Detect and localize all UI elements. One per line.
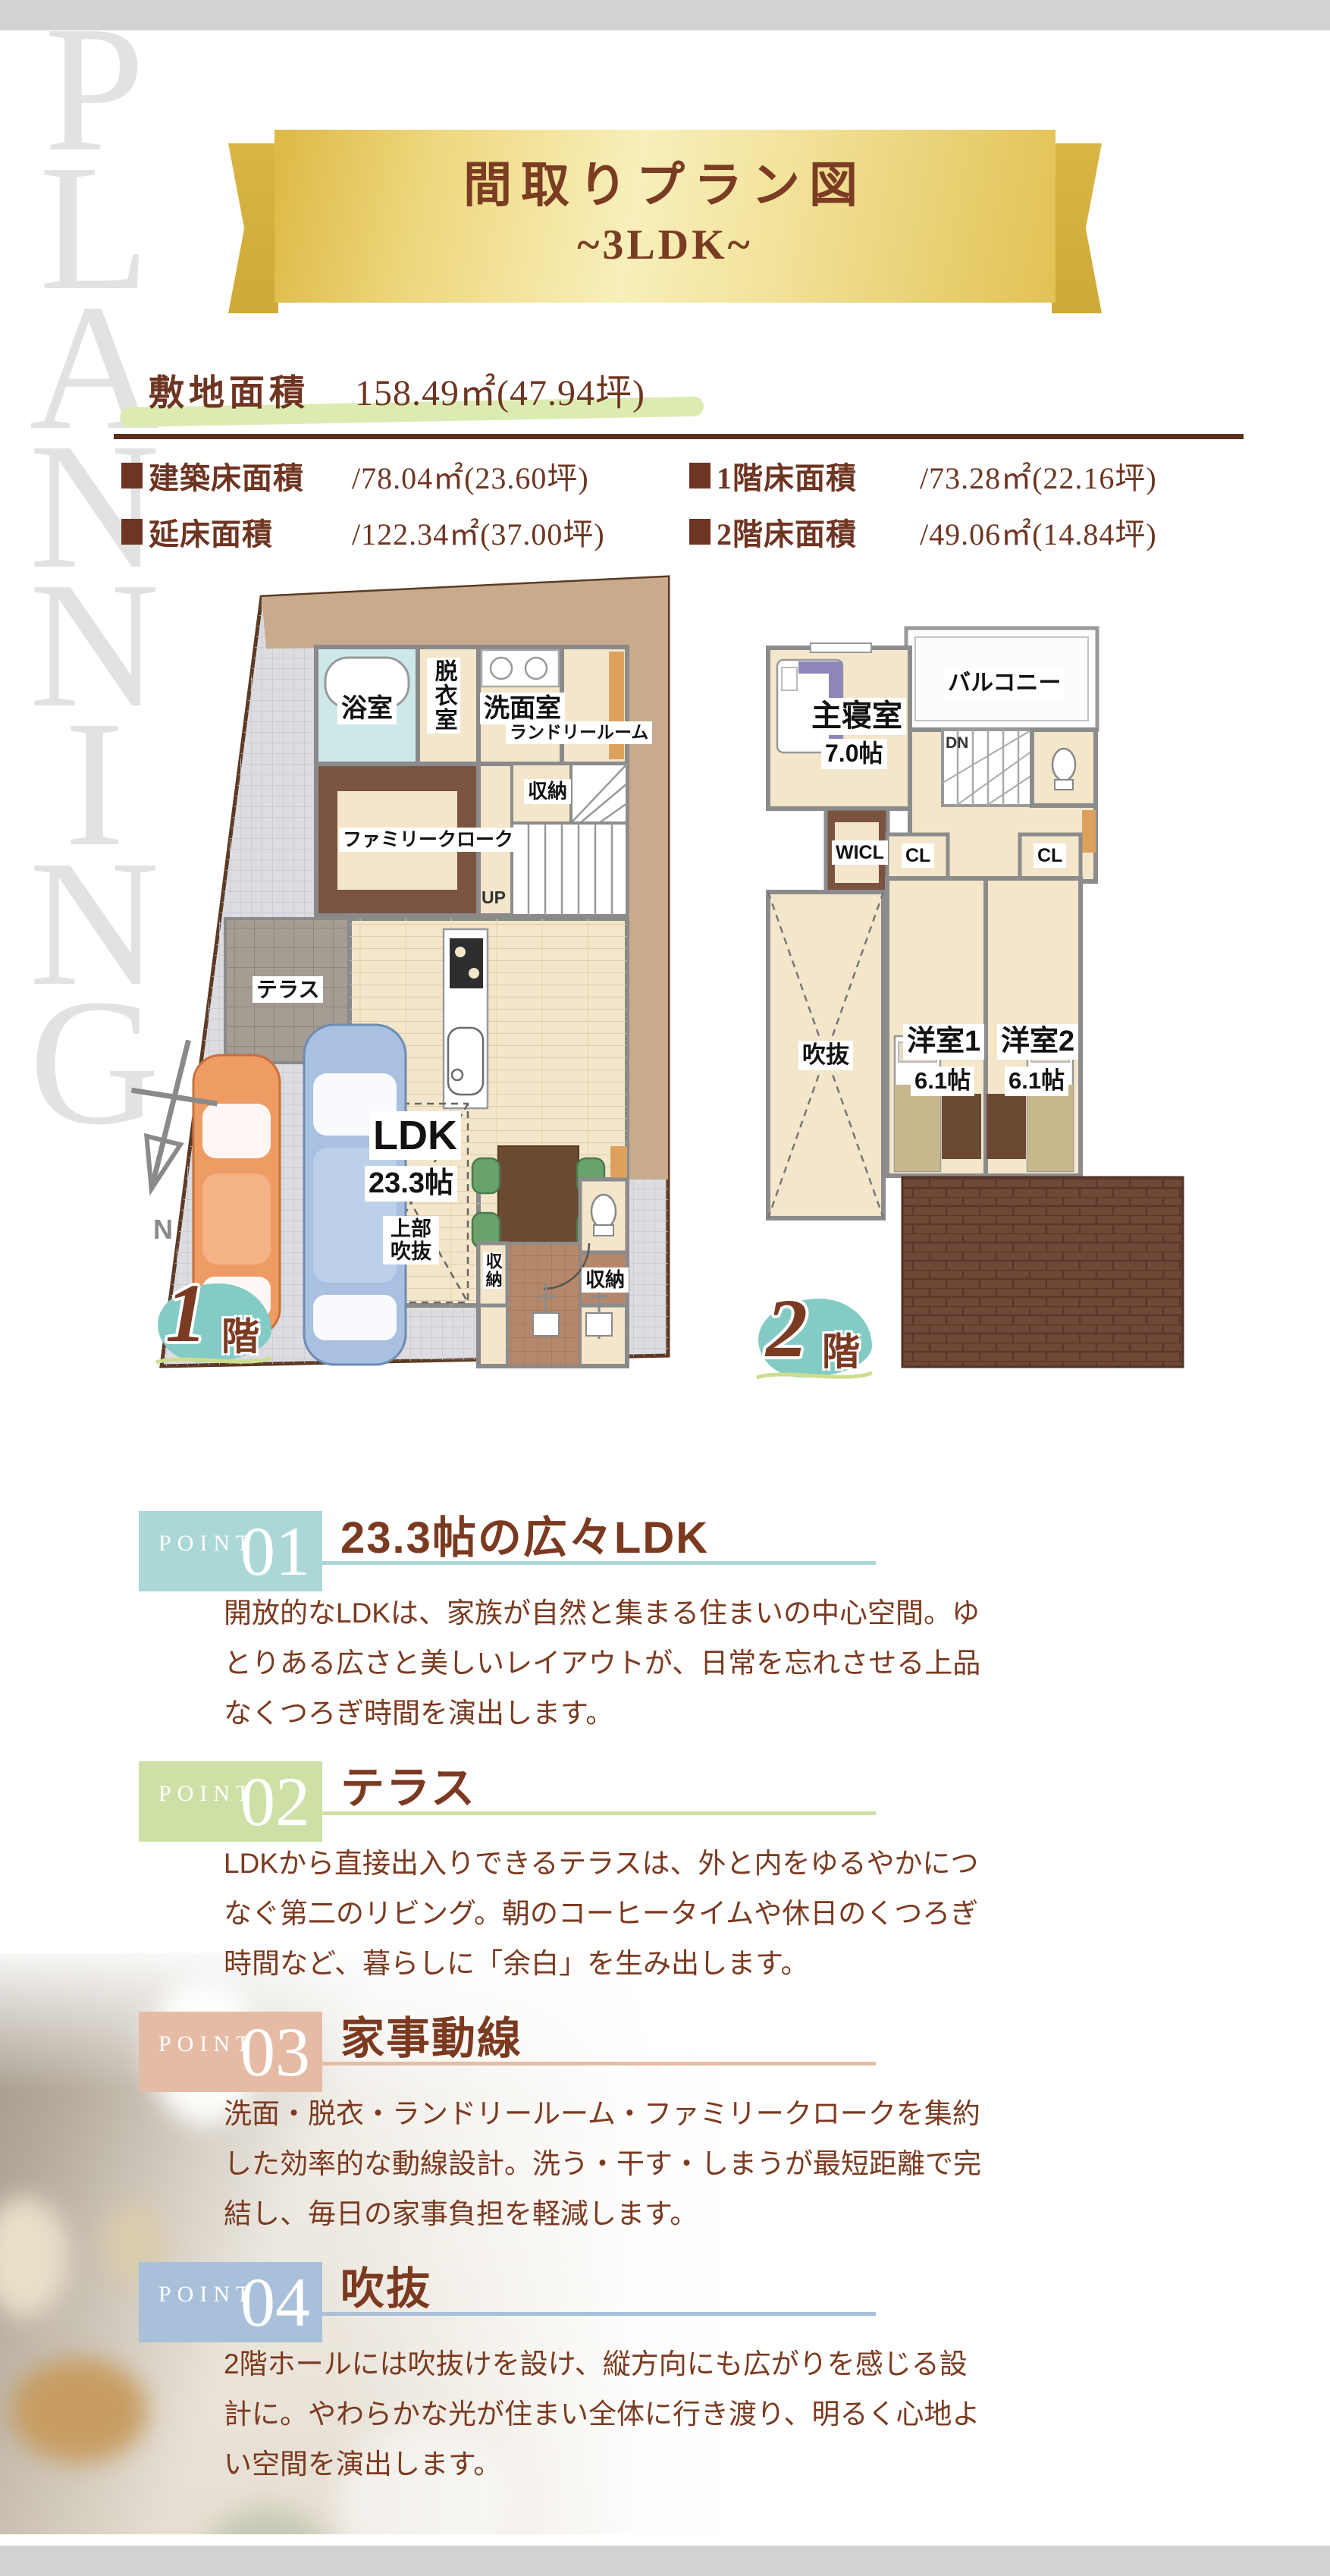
area-value: /49.06㎡(14.84坪) [920,510,1157,554]
area-label: 建築床面積 [149,454,352,498]
west2-size-label: 6.1帖 [1005,1067,1068,1096]
compass: N [103,1026,232,1253]
site-area-label: 敷地面積 [149,374,309,413]
area-item-1f: 1階床面積 /73.28㎡(22.16坪) [689,454,1250,498]
master-label: 主寝室 [808,698,906,735]
terrace-label: テラス [253,976,323,1003]
point-badge: POINT 02 [139,1761,322,1842]
point-number: 04 [240,2262,310,2342]
floor-number: 2 [766,1280,808,1377]
floor-kanji: 階 [822,1321,860,1376]
point-body: 洗面・脱衣・ランドリールーム・ファミリークロークを集約した効率的な動線設計。洗う… [224,2089,990,2239]
stove-icon [450,938,483,988]
toilet-icon [591,1195,616,1228]
page-subtitle: ~3LDK~ [274,221,1056,269]
cl-label: CL [1034,843,1066,868]
west1-label: 洋室1 [903,1024,984,1060]
point-body: 開放的なLDKは、家族が自然と集まる住まいの中心空間。ゆとりある広さと美しいレイ… [224,1588,990,1739]
point-underline [322,2312,876,2316]
room-label-washroom: 洗面室 [480,693,565,724]
roof-bricks [902,1177,1183,1367]
ribbon-tail-left-icon [228,143,278,313]
entrance-tile-grid [507,1243,580,1366]
chair-icon [472,1158,500,1193]
title-ribbon: 間取りプラン図 ~3LDK~ [274,130,1056,303]
west1-size-label: 6.1帖 [911,1067,974,1096]
kitchen-sink-icon [448,1028,483,1095]
stairs-dn-label: DN [946,734,968,752]
ldk-size-label: 23.3帖 [365,1166,457,1202]
ldk-label: LDK [369,1111,461,1160]
square-bullet-icon [689,519,710,545]
point-number: 01 [240,1511,310,1591]
stairs-up-label: UP [481,888,506,908]
compass-n-label: N [153,1214,173,1246]
flyer-page: PLANNING 間取りプラン図 ~3LDK~ 敷地面積 158.49㎡(47.… [0,0,1330,2576]
floor-kanji: 階 [221,1306,259,1361]
desk-icon [987,1094,1026,1159]
point-number: 03 [240,2012,310,2092]
point-section-1: POINT 01 23.3帖の広々LDK 開放的なLDKは、家族が自然と集まる住… [139,1511,1216,1739]
room-label-closet: 収納 [524,779,571,804]
point-title: テラス [340,1752,476,1816]
toilet-tank [1055,780,1073,790]
room-label-family-cloak: ファミリークローク [339,828,517,852]
site-area-row: 敷地面積 158.49㎡(47.94坪) [149,363,645,416]
point-body: LDKから直接出入りできるテラスは、外と内をゆるやかにつなぐ第二のリビング。朝の… [224,1839,990,1989]
toilet-tank [594,1225,613,1236]
area-value: /122.34㎡(37.00坪) [352,510,605,554]
area-grid: 建築床面積 /78.04㎡(23.60坪) 1階床面積 /73.28㎡(22.1… [121,454,1250,554]
point-title: 家事動線 [340,2003,522,2066]
point-title: 吹抜 [340,2253,431,2317]
burner-icon [469,968,479,979]
divider-rule [114,434,1244,439]
sink-icon [491,658,512,679]
window-icon [811,643,871,652]
room-label-bath: 浴室 [337,693,397,724]
site-area-value: 158.49㎡(47.94坪) [355,373,645,413]
cl-label: CL [902,843,934,868]
point-section-4: POINT 04 吹抜 2階ホールには吹抜けを設け、縦方向にも広がりを感じる設計… [139,2262,1216,2490]
square-bullet-icon [121,519,143,545]
area-item-building: 建築床面積 /78.04㎡(23.60坪) [121,454,682,498]
burner-icon [455,947,466,957]
room-label-dressing: 脱衣室 [427,658,460,734]
storage-right-label: 収納 [582,1268,629,1293]
room-label-laundry: ランドリールーム [506,721,652,744]
planning-watermark: PLANNING [17,20,172,1132]
area-label: 2階床面積 [717,510,920,554]
wood-door [1082,810,1096,853]
point-underline [322,1561,876,1565]
wicl-label: WICL [832,840,888,865]
floor-badge-1f: 1 階 [158,1283,276,1373]
area-item-2f: 2階床面積 /49.06㎡(14.84坪) [689,510,1250,554]
area-value: /73.28㎡(22.16坪) [920,454,1157,498]
bottom-gray-bar [0,2546,1330,2576]
toilet-icon [1052,749,1075,781]
square-bullet-icon [121,463,143,488]
ribbon-tail-right-icon [1052,143,1102,313]
sink-icon [525,658,547,679]
point-section-2: POINT 02 テラス LDKから直接出入りできるテラスは、外と内をゆるやかに… [139,1761,1216,1989]
page-title: 間取りプラン図 [274,146,1056,216]
point-underline [322,2062,876,2066]
point-title: 23.3帖の広々LDK [340,1502,709,1566]
upper-void-label: 上部吹抜 [383,1216,439,1264]
top-gray-bar [0,0,1330,30]
void-label: 吹抜 [798,1041,853,1070]
storage-left-label: 収納 [483,1252,502,1289]
point-badge: POINT 03 [139,2012,322,2092]
point-badge: POINT 04 [139,2262,322,2342]
floor-plan-2f: バルコニー 主寝室 7.0帖 DN WICL CL CL 洋室1 6.1帖 洋室… [754,614,1187,1396]
area-item-total: 延床面積 /122.34㎡(37.00坪) [121,510,682,554]
area-value: /78.04㎡(23.60坪) [352,454,589,498]
point-body: 2階ホールには吹抜けを設け、縦方向にも広がりを感じる設計に。やわらかな光が住まい… [224,2339,990,2490]
area-label: 1階床面積 [717,454,920,498]
west2-label: 洋室2 [997,1024,1078,1060]
square-bullet-icon [689,463,710,488]
master-size-label: 7.0帖 [821,739,887,769]
balcony-label: バルコニー [944,669,1065,698]
point-section-3: POINT 03 家事動線 洗面・脱衣・ランドリールーム・ファミリークロークを集… [139,2012,1216,2239]
point-badge: POINT 01 [139,1511,322,1591]
point-underline [322,1811,876,1815]
point-number: 02 [240,1761,310,1842]
floor-badge-2f: 2 階 [758,1299,877,1388]
desk-icon [942,1094,981,1159]
area-label: 延床面積 [149,510,352,554]
floor-number: 1 [165,1265,207,1362]
